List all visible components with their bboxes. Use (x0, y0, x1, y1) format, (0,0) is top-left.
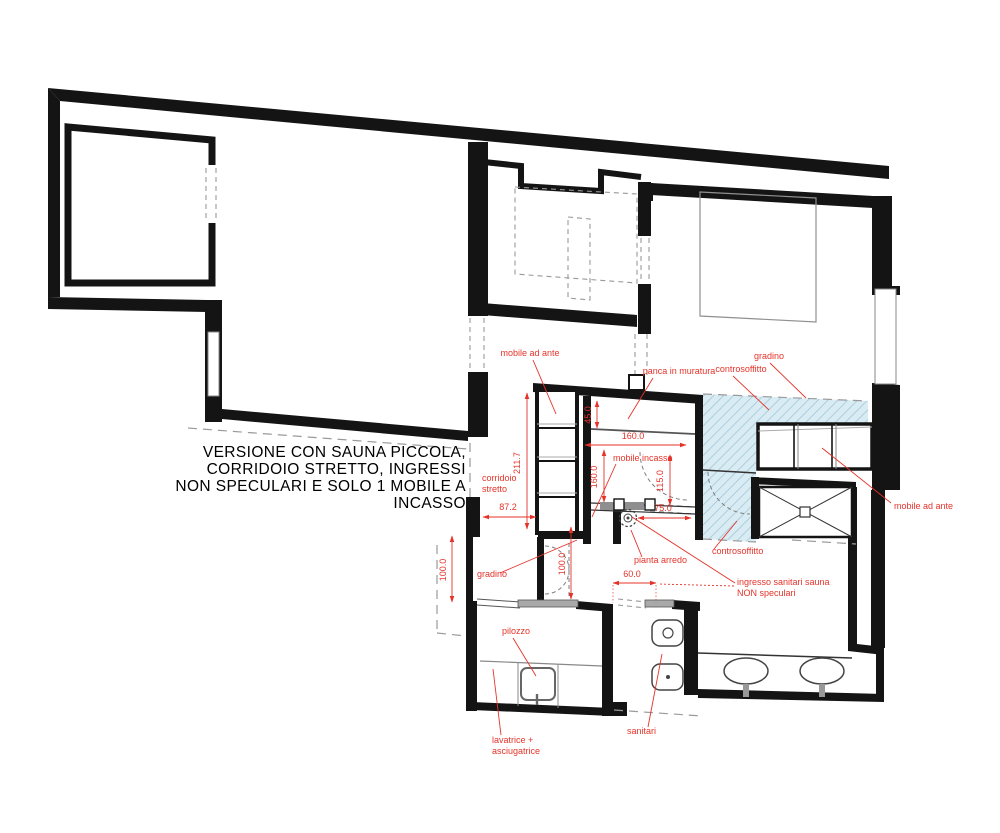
sink-right (800, 658, 844, 684)
plan-title: VERSIONE CON SAUNA PICCOLA, CORRIDOIO ST… (175, 444, 466, 512)
sink-left (724, 658, 768, 684)
plan-label: pilozzo (502, 626, 530, 636)
plan-label: gradino (477, 569, 507, 579)
shower-drain (800, 507, 810, 517)
counter-line (480, 661, 602, 666)
right-shaft-right-wall (871, 490, 885, 648)
right-cabinet (758, 424, 872, 469)
floor-plan-canvas: 211.745.0160.0160.0115.087.275.0100.0100… (0, 0, 1000, 833)
sauna-right-wall (695, 398, 703, 540)
niche-right-wall (613, 508, 621, 544)
plan-label: lavatrice + (492, 735, 533, 745)
sauna-wall-notch (629, 375, 644, 390)
title-line-2: CORRIDOIO STRETTO, INGRESSI (207, 461, 466, 478)
dimension-text: 87.2 (499, 502, 517, 512)
dimension-text: 160.0 (622, 431, 645, 441)
leader-line (770, 363, 806, 398)
sauna-sliding-door (591, 499, 695, 514)
laundry-step-bar (518, 600, 578, 607)
shower-dashed-edge (792, 540, 856, 544)
right-wall-lower (876, 651, 884, 697)
sink-drain (743, 684, 749, 697)
plan-label: NON speculari (737, 588, 796, 598)
plan-label: stretto (482, 484, 507, 494)
vanity-counter-line (698, 653, 852, 658)
bath-step-bar (645, 600, 674, 607)
plan-label: ingresso sanitari sauna (737, 577, 830, 587)
bath-left-wall (684, 606, 698, 695)
plan-label: controsoffitto (712, 546, 763, 556)
plan-label: panca in muratura (643, 366, 716, 376)
bed-outline (700, 192, 816, 322)
right-wall-mid (872, 383, 900, 490)
toilet-drain (663, 628, 673, 638)
dimension-text: 100.0 (557, 553, 567, 576)
dimension-text: 60.0 (623, 569, 641, 579)
leader-line (493, 669, 501, 735)
room3-top-notch-wall (484, 162, 641, 191)
left-window (208, 332, 219, 396)
sink-drain (819, 684, 825, 697)
plan-label: sanitari (627, 726, 656, 736)
wc-dashed-line (614, 710, 702, 716)
loft-dashed-outline (515, 187, 637, 283)
corridor-right-wall-low (537, 537, 544, 601)
laundry-right-wall (602, 604, 613, 716)
corridor-left-wall (466, 497, 480, 537)
shower-square (759, 487, 856, 544)
laundry-top-right-wall (576, 601, 612, 612)
leader-line-dashed (658, 584, 734, 586)
outer-dashed-line (437, 633, 466, 636)
laundry-entry-track (477, 599, 520, 602)
laundry-corner-step (613, 702, 627, 716)
bidet-drain (666, 675, 670, 679)
room-outlines (68, 127, 641, 283)
plan-label: pianta arredo (634, 555, 687, 565)
room34-wall-upper (638, 182, 651, 236)
dimension-text: 115.0 (655, 470, 665, 492)
plan-label: gradino (754, 351, 784, 361)
title-line-4: INCASSO (393, 495, 466, 512)
dimension-text: 75.0 (654, 503, 672, 513)
wc-fixtures (652, 620, 683, 690)
room34-wall-lower (638, 284, 651, 334)
bottom-right-wall (698, 689, 884, 702)
title-line-1: VERSIONE CON SAUNA PICCOLA, (203, 444, 466, 461)
leader-line (631, 530, 642, 557)
dimension-text: 45.0 (583, 406, 593, 424)
title-line-3: NON SPECULARI E SOLO 1 MOBILE A (175, 478, 466, 495)
room3-bottom-wall (482, 303, 637, 327)
fixtures (480, 187, 872, 708)
right-wall-upper (872, 196, 892, 288)
stair-dashed-outline (568, 217, 590, 300)
laundry-entry-track (477, 605, 520, 608)
outer-left-wall (48, 88, 60, 297)
plant-center (627, 517, 630, 520)
bath-entry-dash (618, 605, 646, 608)
plan-label: mobile ad ante (500, 348, 559, 358)
laundry-left-wall (466, 601, 477, 711)
laundry-fixtures (480, 661, 602, 708)
bath-entry-dash (618, 599, 646, 602)
plan-label: corridoio (482, 473, 517, 483)
dimension-text: 211.7 (512, 452, 522, 474)
tall-cabinet (537, 390, 577, 533)
mid-door-gap (464, 316, 492, 372)
corridor-left-wall-low (466, 537, 473, 603)
laundry-bottom-wall (472, 702, 612, 716)
door-jamb (614, 499, 624, 510)
room1-walls (68, 127, 212, 283)
outer-bottom-left-wall (48, 297, 207, 312)
room2-bottom-wall (222, 409, 468, 441)
plan-label: mobile incasso (613, 453, 673, 463)
dimension-text: 160.0 (589, 466, 599, 489)
right-window (875, 289, 896, 384)
plan-label: mobile ad ante (894, 501, 953, 511)
door-track (591, 510, 695, 514)
plan-label: controsoffitto (715, 364, 766, 374)
dimension-text: 100.0 (438, 559, 448, 582)
floor-plan-svg: 211.745.0160.0160.0115.087.275.0100.0100… (0, 0, 1000, 833)
plan-label: asciugatrice (492, 746, 540, 756)
mid-vertical-wall (468, 142, 488, 437)
